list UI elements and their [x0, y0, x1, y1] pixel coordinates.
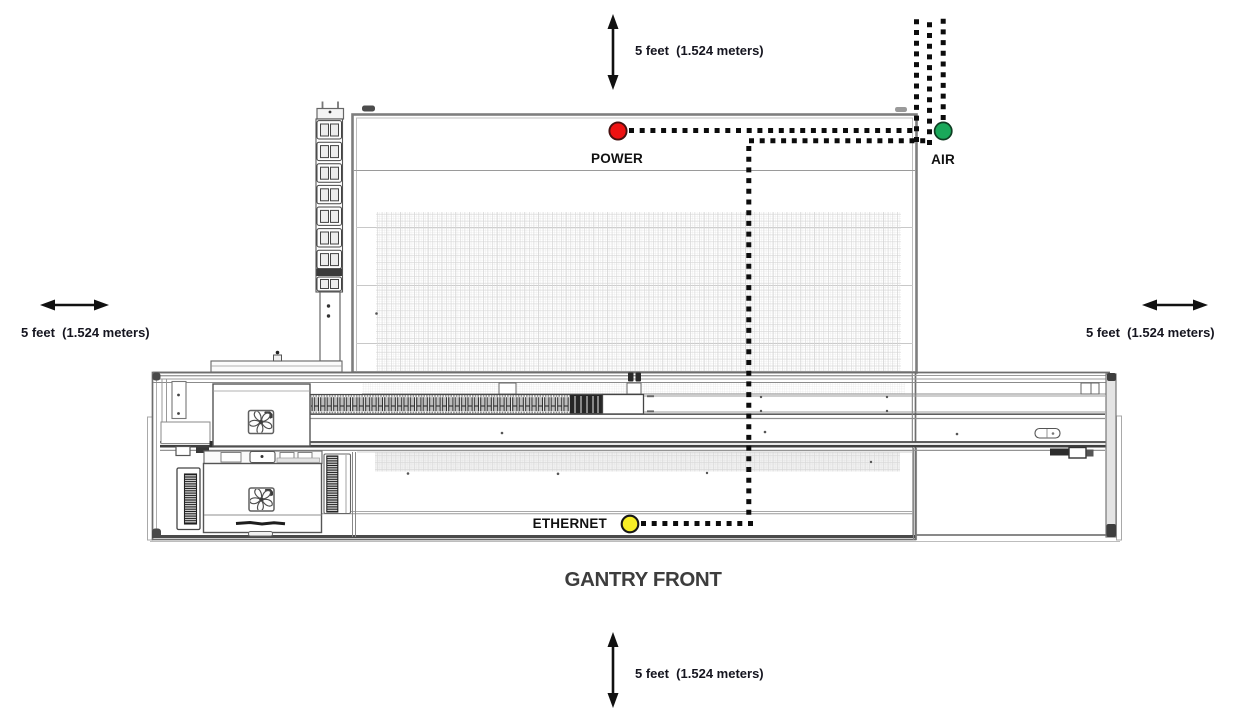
svg-text:5 feet (1.524 meters): 5 feet (1.524 meters) — [21, 325, 150, 340]
svg-text:AIR: AIR — [931, 152, 955, 167]
svg-text:5 feet (1.524 meters): 5 feet (1.524 meters) — [1086, 325, 1215, 340]
svg-text:GANTRY FRONT: GANTRY FRONT — [565, 568, 723, 591]
svg-text:ETHERNET: ETHERNET — [533, 516, 608, 531]
svg-text:POWER: POWER — [591, 151, 643, 166]
svg-text:5 feet (1.524 meters): 5 feet (1.524 meters) — [635, 666, 764, 681]
svg-text:5 feet (1.524 meters): 5 feet (1.524 meters) — [635, 43, 764, 58]
